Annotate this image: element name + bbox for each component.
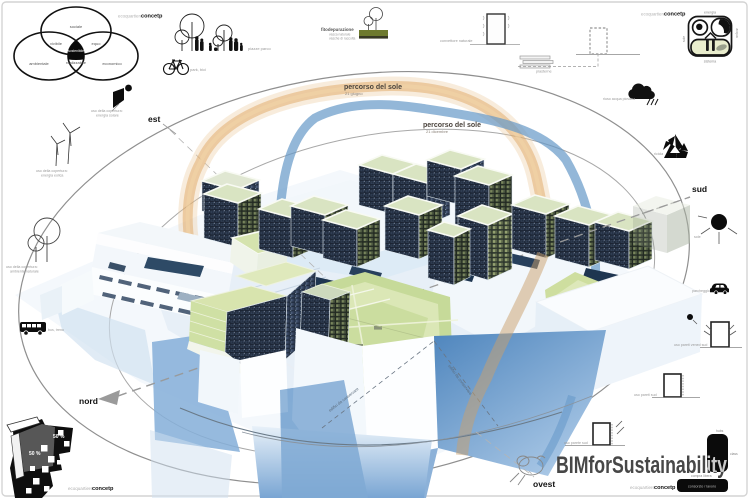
svg-text:concetp: concetp bbox=[654, 485, 676, 491]
svg-text:energia solare: energia solare bbox=[96, 114, 119, 118]
svg-text:BIMforSustainability: BIMforSustainability bbox=[556, 452, 727, 479]
svg-text:concetp: concetp bbox=[664, 12, 686, 18]
svg-text:uso della copertura:: uso della copertura: bbox=[36, 169, 68, 173]
svg-text:ecoquartiere: ecoquartiere bbox=[118, 14, 143, 19]
svg-text:parcheggio: parcheggio bbox=[692, 289, 710, 293]
svg-text:ambiente naturale: ambiente naturale bbox=[10, 270, 39, 274]
svg-text:sociale: sociale bbox=[70, 24, 83, 29]
svg-text:sistema: sistema bbox=[704, 60, 716, 64]
svg-text:piasterne: piasterne bbox=[536, 70, 552, 74]
svg-text:convettore naturale: convettore naturale bbox=[440, 39, 473, 43]
svg-text:riuso acqua piovana: riuso acqua piovana bbox=[603, 97, 635, 101]
svg-text:uso pareti vened sud: uso pareti vened sud bbox=[674, 343, 707, 347]
svg-text:nord: nord bbox=[79, 396, 98, 406]
svg-text:21 giugno: 21 giugno bbox=[345, 91, 363, 96]
svg-text:uso della copertura:: uso della copertura: bbox=[91, 109, 123, 113]
svg-text:sole: sole bbox=[682, 36, 686, 42]
svg-text:energia eolica: energia eolica bbox=[41, 174, 63, 178]
svg-text:50 %: 50 % bbox=[53, 434, 65, 440]
svg-text:ambientale: ambientale bbox=[29, 61, 49, 66]
svg-text:vasche di raccolta: vasche di raccolta bbox=[329, 36, 356, 40]
svg-text:piazze parco: piazze parco bbox=[248, 46, 271, 51]
svg-text:economico: economico bbox=[102, 61, 122, 66]
svg-text:realizzabile: realizzabile bbox=[66, 60, 87, 65]
svg-text:uso della copertura:: uso della copertura: bbox=[6, 265, 38, 269]
svg-text:uso pareti sud: uso pareti sud bbox=[634, 393, 657, 397]
svg-text:ovest: ovest bbox=[533, 479, 555, 489]
svg-text:bus, treno: bus, treno bbox=[48, 328, 64, 332]
svg-text:concetp: concetp bbox=[92, 486, 114, 492]
svg-text:50 %: 50 % bbox=[29, 451, 41, 457]
svg-text:park, bici: park, bici bbox=[190, 67, 206, 72]
svg-text:equo: equo bbox=[92, 41, 102, 46]
svg-text:percorso del sole: percorso del sole bbox=[344, 84, 402, 91]
svg-text:concetp: concetp bbox=[141, 14, 163, 20]
svg-text:ecoquartiere: ecoquartiere bbox=[630, 485, 656, 490]
svg-text:percorso del sole: percorso del sole bbox=[423, 122, 481, 129]
svg-text:sud: sud bbox=[692, 184, 707, 194]
svg-text:consorzio / lavoro: consorzio / lavoro bbox=[688, 485, 716, 489]
svg-text:sostenibile: sostenibile bbox=[68, 49, 84, 53]
svg-text:est: est bbox=[148, 114, 160, 124]
svg-text:ecoquartiere: ecoquartiere bbox=[641, 12, 666, 17]
svg-text:vivibile: vivibile bbox=[50, 41, 63, 46]
svg-text:hubs: hubs bbox=[716, 429, 724, 433]
svg-text:21 dicembre: 21 dicembre bbox=[426, 129, 449, 134]
svg-text:ricicla: ricicla bbox=[654, 152, 663, 156]
svg-text:fitodepurazione: fitodepurazione bbox=[321, 27, 354, 32]
svg-text:uso parete sud: uso parete sud bbox=[564, 441, 588, 445]
svg-text:ecoquartiere: ecoquartiere bbox=[68, 486, 94, 491]
svg-text:class: class bbox=[730, 452, 738, 456]
svg-text:energia: energia bbox=[704, 11, 716, 15]
svg-text:acqua: acqua bbox=[735, 28, 739, 37]
svg-text:sole: sole bbox=[694, 235, 701, 239]
